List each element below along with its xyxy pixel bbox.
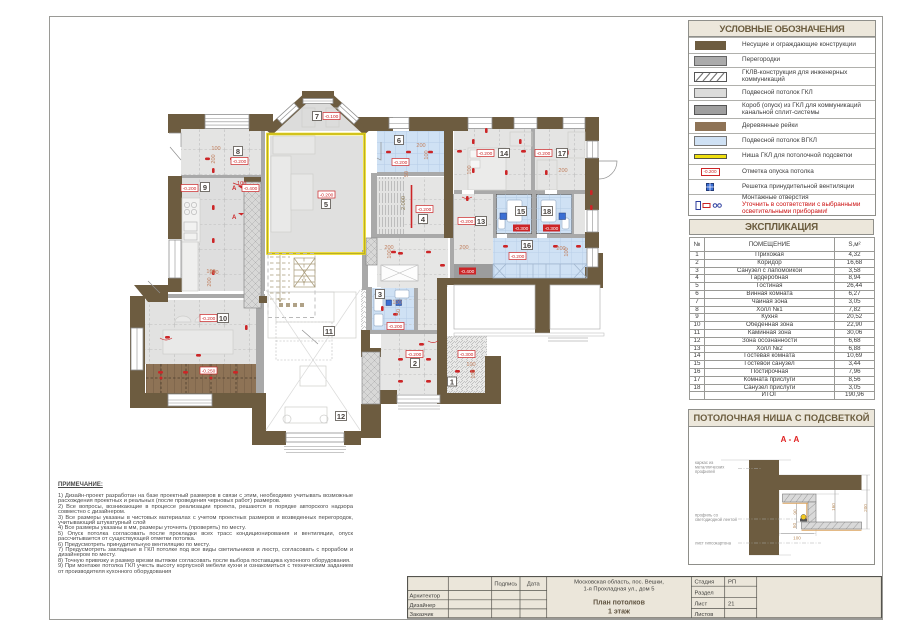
svg-text:Листов: Листов xyxy=(695,612,714,618)
svg-text:100: 100 xyxy=(211,146,220,152)
svg-text:50: 50 xyxy=(792,523,797,529)
svg-text:9: 9 xyxy=(203,183,207,192)
svg-text:50: 50 xyxy=(396,309,402,315)
svg-text:200: 200 xyxy=(459,245,468,251)
svg-text:-0.200: -0.200 xyxy=(537,151,551,157)
svg-text:Лист: Лист xyxy=(695,602,708,608)
svg-text:12: 12 xyxy=(337,412,345,421)
svg-text:13: 13 xyxy=(477,217,485,226)
svg-text:профилей: профилей xyxy=(695,469,715,474)
svg-text:10: 10 xyxy=(219,314,227,323)
svg-text:-0.400: -0.400 xyxy=(461,269,475,275)
svg-text:А - А: А - А xyxy=(781,435,800,444)
svg-text:светодиодной лентой: светодиодной лентой xyxy=(695,517,737,522)
svg-text:16: 16 xyxy=(523,241,531,250)
svg-text:-0.200: -0.200 xyxy=(233,159,247,165)
svg-text:21: 21 xyxy=(728,602,734,608)
svg-text:200: 200 xyxy=(211,154,217,163)
svg-text:200: 200 xyxy=(863,504,868,512)
svg-text:90: 90 xyxy=(793,509,798,515)
svg-text:-0.200: -0.200 xyxy=(183,186,197,192)
svg-text:лист гипсокартона: лист гипсокартона xyxy=(695,541,732,546)
svg-text:Подпись: Подпись xyxy=(494,582,517,588)
svg-text:-0.200: -0.200 xyxy=(408,352,422,358)
svg-text:100: 100 xyxy=(392,300,401,306)
svg-text:-0.200: -0.200 xyxy=(511,254,525,260)
svg-text:-0.200: -0.200 xyxy=(320,193,334,199)
svg-text:Заказчик: Заказчик xyxy=(410,612,434,618)
svg-text:-0.200: -0.200 xyxy=(418,207,432,213)
svg-text:6: 6 xyxy=(397,136,401,145)
svg-text:-0.200: -0.200 xyxy=(202,316,216,322)
svg-text:7: 7 xyxy=(315,112,319,121)
svg-text:РП: РП xyxy=(728,580,736,586)
svg-text:-0.250: -0.250 xyxy=(202,369,216,375)
svg-text:2: 2 xyxy=(413,359,417,368)
svg-text:200: 200 xyxy=(207,277,213,286)
svg-text:-0.300: -0.300 xyxy=(515,226,529,232)
svg-text:100: 100 xyxy=(424,150,430,159)
svg-text:14: 14 xyxy=(500,149,509,158)
svg-text:Архитектор: Архитектор xyxy=(410,594,441,600)
svg-text:100: 100 xyxy=(793,536,801,541)
svg-text:Московская область, пос. Вешки: Московская область, пос. Вешки, xyxy=(574,580,664,586)
svg-text:Раздел: Раздел xyxy=(695,591,714,597)
svg-text:200: 200 xyxy=(558,168,567,174)
svg-text:-0.200: -0.200 xyxy=(394,160,408,166)
svg-text:100: 100 xyxy=(466,362,475,368)
svg-text:8: 8 xyxy=(236,147,240,156)
svg-text:100: 100 xyxy=(387,249,393,258)
svg-text:-0.200: -0.200 xyxy=(389,324,403,330)
svg-text:3: 3 xyxy=(378,290,382,299)
svg-text:План потолков: План потолков xyxy=(593,600,645,607)
svg-text:1: 1 xyxy=(450,378,454,387)
svg-text:Дизайнер: Дизайнер xyxy=(410,602,436,609)
svg-text:2.000: 2.000 xyxy=(401,196,407,210)
svg-text:200: 200 xyxy=(416,143,425,149)
svg-text:-0.300: -0.300 xyxy=(545,226,559,232)
svg-text:100: 100 xyxy=(209,270,218,276)
svg-text:1-я Прохладная ул., дом 5: 1-я Прохладная ул., дом 5 xyxy=(584,587,655,593)
svg-text:17: 17 xyxy=(558,149,566,158)
svg-text:-0.100: -0.100 xyxy=(325,114,339,120)
svg-text:100: 100 xyxy=(471,369,477,378)
svg-text:Дата: Дата xyxy=(527,582,541,588)
svg-text:160: 160 xyxy=(831,503,836,511)
svg-text:200: 200 xyxy=(556,246,565,252)
svg-text:11: 11 xyxy=(325,327,333,336)
svg-text:-0.300: -0.300 xyxy=(460,352,474,358)
svg-text:-0.200: -0.200 xyxy=(479,151,493,157)
svg-text:-0.400: -0.400 xyxy=(244,186,258,192)
svg-text:1 этаж: 1 этаж xyxy=(608,609,631,616)
svg-text:18: 18 xyxy=(543,207,551,216)
svg-text:15: 15 xyxy=(517,207,525,216)
svg-text:Стадия: Стадия xyxy=(695,580,715,586)
svg-text:100: 100 xyxy=(467,165,473,174)
svg-text:50: 50 xyxy=(404,171,410,177)
svg-text:5: 5 xyxy=(324,200,328,209)
svg-text:-0.200: -0.200 xyxy=(460,219,474,225)
svg-text:А: А xyxy=(232,215,237,221)
